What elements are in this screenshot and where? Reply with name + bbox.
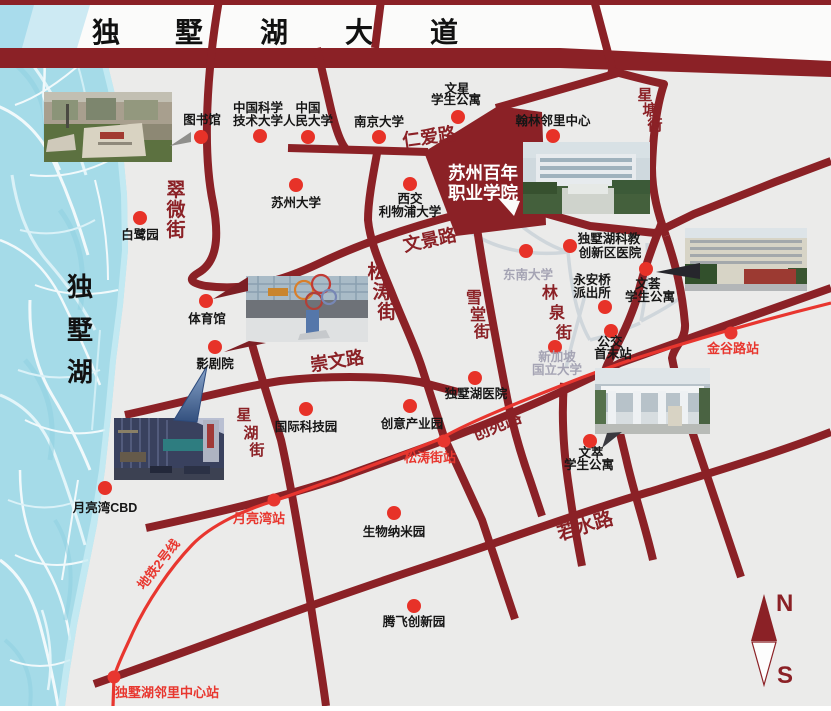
svg-text:学生公寓: 学生公寓	[625, 289, 675, 304]
svg-text:雪: 雪	[466, 289, 482, 307]
svg-text:南京大学: 南京大学	[354, 114, 405, 129]
svg-text:堂: 堂	[470, 305, 486, 324]
svg-text:文荟: 文荟	[635, 276, 661, 291]
svg-text:人民大学: 人民大学	[283, 113, 334, 128]
svg-text:金谷路站: 金谷路站	[706, 341, 759, 356]
svg-text:湖: 湖	[243, 425, 258, 442]
svg-text:创新区医院: 创新区医院	[578, 245, 642, 260]
svg-text:月亮湾站: 月亮湾站	[232, 511, 285, 526]
svg-text:湖: 湖	[260, 17, 288, 48]
svg-text:松: 松	[367, 260, 386, 283]
svg-text:职业学院: 职业学院	[448, 183, 518, 203]
svg-text:星: 星	[236, 407, 251, 424]
svg-text:街: 街	[376, 300, 396, 323]
svg-text:东南大学: 东南大学	[503, 267, 554, 282]
svg-text:月亮湾CBD: 月亮湾CBD	[72, 500, 138, 515]
svg-text:学生公寓: 学生公寓	[564, 457, 614, 472]
svg-text:图书馆: 图书馆	[183, 112, 221, 127]
svg-text:创意产业园: 创意产业园	[380, 416, 444, 431]
svg-text:涛: 涛	[372, 281, 391, 303]
svg-text:林: 林	[542, 283, 558, 302]
svg-text:N: N	[776, 590, 793, 617]
svg-text:中国科学: 中国科学	[233, 100, 284, 115]
svg-text:墅: 墅	[175, 17, 203, 48]
svg-text:苏州百年: 苏州百年	[448, 163, 518, 183]
svg-text:国立大学: 国立大学	[532, 362, 583, 377]
svg-text:新加坡: 新加坡	[538, 349, 576, 364]
svg-text:国际科技园: 国际科技园	[275, 419, 338, 434]
svg-text:首末站: 首末站	[594, 346, 632, 361]
svg-text:技术大学: 技术大学	[233, 113, 284, 128]
svg-text:独: 独	[92, 17, 120, 48]
svg-text:大: 大	[345, 17, 373, 48]
svg-text:泉: 泉	[549, 303, 566, 322]
svg-text:S: S	[777, 662, 793, 689]
svg-text:湖: 湖	[67, 357, 93, 387]
svg-text:白鹭园: 白鹭园	[121, 227, 159, 242]
svg-text:街: 街	[165, 218, 185, 241]
svg-text:街: 街	[555, 323, 572, 342]
svg-text:道: 道	[430, 16, 458, 48]
svg-text:街: 街	[646, 116, 662, 134]
svg-text:松涛街站: 松涛街站	[404, 450, 456, 465]
svg-text:翠: 翠	[166, 179, 185, 201]
svg-text:体育馆: 体育馆	[188, 311, 226, 326]
svg-text:街: 街	[248, 441, 264, 459]
svg-text:微: 微	[165, 198, 186, 221]
svg-text:独墅湖科教: 独墅湖科教	[577, 231, 641, 246]
svg-text:翰林邻里中心: 翰林邻里中心	[515, 113, 591, 128]
svg-text:苏州大学: 苏州大学	[271, 195, 322, 210]
svg-text:利物浦大学: 利物浦大学	[379, 204, 442, 219]
svg-text:永安桥: 永安桥	[572, 272, 611, 287]
svg-text:腾飞创新园: 腾飞创新园	[382, 614, 446, 629]
svg-text:独: 独	[67, 272, 93, 302]
svg-text:派出所: 派出所	[573, 285, 611, 300]
svg-text:影剧院: 影剧院	[196, 356, 234, 371]
svg-text:西交: 西交	[397, 191, 423, 206]
svg-text:墅: 墅	[67, 315, 93, 345]
svg-text:中国: 中国	[295, 100, 320, 115]
svg-text:街: 街	[473, 322, 490, 341]
svg-text:生物纳米园: 生物纳米园	[363, 524, 426, 539]
svg-text:独墅湖医院: 独墅湖医院	[444, 386, 508, 401]
svg-text:学生公寓: 学生公寓	[431, 92, 481, 107]
svg-text:独墅湖邻里中心站: 独墅湖邻里中心站	[115, 685, 219, 700]
